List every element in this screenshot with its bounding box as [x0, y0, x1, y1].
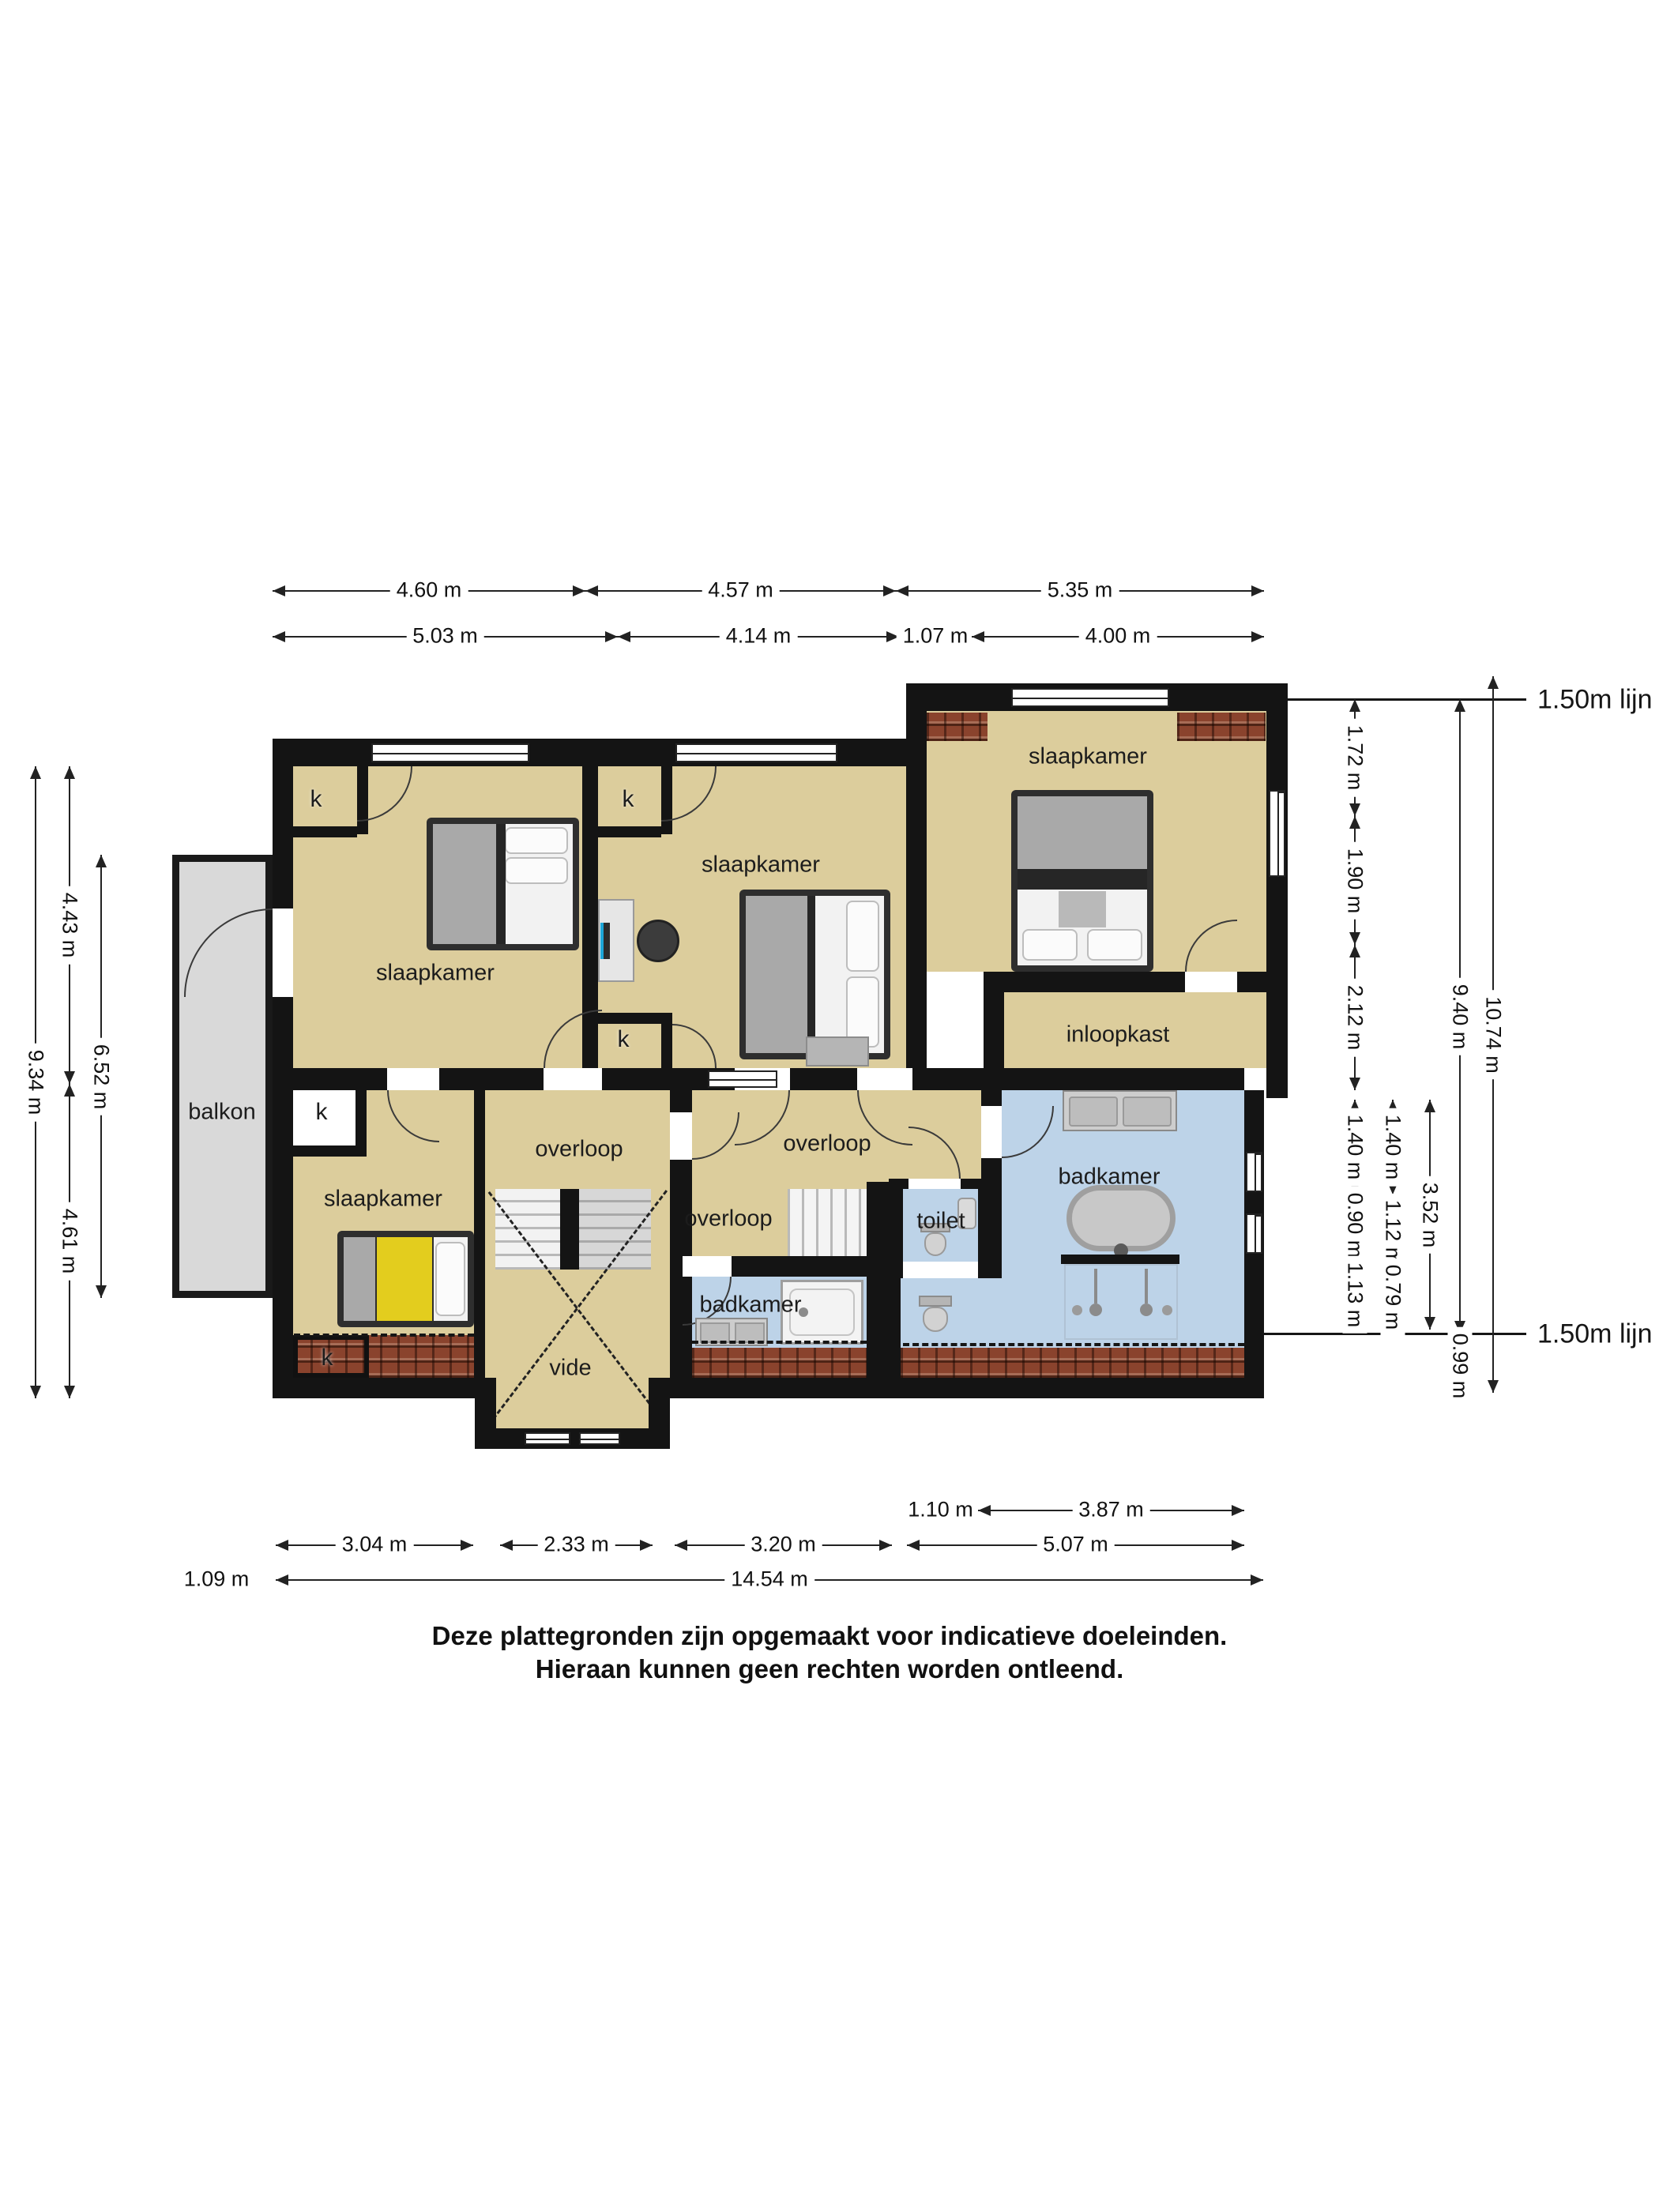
closet-label-k: k [623, 786, 634, 813]
dimension-top-414: 4.14 m [618, 636, 899, 638]
dimension-label: 9.34 m [24, 1044, 48, 1122]
closet-label-k: k [618, 1026, 630, 1053]
dimension-bot-387: 3.87 m [978, 1510, 1244, 1511]
dimension-label: 1.10 m [901, 1498, 980, 1522]
dimension-top-535: 5.35 m [896, 590, 1264, 592]
dimension-top-460: 4.60 m [273, 590, 585, 592]
dimension-label: 10.74 m [1481, 990, 1506, 1080]
dimension-right-190: 1.90 m [1354, 816, 1356, 945]
dimension-right-352: 3.52 m [1429, 1100, 1431, 1330]
closet-label-k: k [322, 1345, 333, 1371]
dimension-label: 6.52 m [89, 1037, 114, 1115]
dimension-label: 2.33 m [537, 1533, 615, 1557]
dimension-label: 3.52 m [1418, 1176, 1443, 1254]
dimension-label: 14.54 m [724, 1567, 814, 1592]
dimension-label: 9.40 m [1448, 977, 1473, 1055]
dimension-label: 0.79 m [1381, 1258, 1405, 1337]
dimension-left-461: 4.61 m [69, 1084, 70, 1398]
dimension-label: 4.60 m [390, 578, 468, 603]
dimension-left-443: 4.43 m [69, 766, 70, 1084]
dimension-top-457: 4.57 m [585, 590, 896, 592]
dimension-label: 1.07 m [897, 624, 975, 649]
dimension-label: 1.72 m [1343, 719, 1367, 797]
dimension-bot-109: 1.09 m [182, 1579, 251, 1581]
dimension-label: 4.00 m [1079, 624, 1157, 649]
floorplan-page: slaapkamer slaapkamer slaapkamer slaapka… [0, 0, 1659, 2212]
dimension-right-113: 1.13 m [1354, 1256, 1356, 1333]
dimension-label: 0.99 m [1448, 1327, 1473, 1405]
dimension-label: 1.40 m [1343, 1108, 1367, 1187]
dimension-label: 5.07 m [1036, 1533, 1115, 1557]
dimension-bot-304: 3.04 m [276, 1544, 473, 1546]
dimension-label: 1.40 m [1381, 1108, 1405, 1187]
dimension-top-400: 4.00 m [972, 636, 1264, 638]
dimension-bot-233: 2.33 m [500, 1544, 653, 1546]
dimension-left-934: 9.34 m [35, 766, 36, 1398]
dimension-label: 4.14 m [720, 624, 798, 649]
dimension-right-140a: 1.40 m [1354, 1100, 1356, 1194]
dimension-label: 3.20 m [744, 1533, 822, 1557]
dimension-label: 1.13 m [1343, 1255, 1367, 1334]
closet-label-k: k [316, 1099, 328, 1126]
dimension-right-099: 0.99 m [1459, 1334, 1461, 1398]
dimension-top-107: 1.07 m [899, 636, 972, 638]
dimension-label: 3.04 m [336, 1533, 414, 1557]
dimension-right-172: 1.72 m [1354, 699, 1356, 816]
dimension-label: 2.12 m [1343, 979, 1367, 1057]
dimension-right-212: 2.12 m [1354, 945, 1356, 1090]
dimension-right-140b: 1.40 m [1392, 1100, 1394, 1194]
dimension-bot-320: 3.20 m [675, 1544, 892, 1546]
dimension-bot-1454: 14.54 m [276, 1579, 1263, 1581]
dimension-label: 5.35 m [1041, 578, 1119, 603]
closet-label-k: k [310, 786, 322, 813]
dimension-label: 4.57 m [702, 578, 780, 603]
dimension-right-090: 0.90 m [1354, 1194, 1356, 1256]
dimension-bot-110: 1.10 m [903, 1510, 978, 1511]
dimension-label: 5.03 m [406, 624, 484, 649]
dimension-right-1074: 10.74 m [1492, 676, 1494, 1393]
dimension-label: 1.09 m [178, 1567, 256, 1592]
dimension-label: 3.87 m [1072, 1498, 1150, 1522]
generated-annotations: kkkkk4.60 m4.57 m5.35 m5.03 m4.14 m1.07 … [0, 0, 1659, 2212]
dimension-right-940: 9.40 m [1459, 699, 1461, 1334]
dimension-label: 0.90 m [1343, 1187, 1367, 1265]
dimension-left-652: 6.52 m [100, 855, 102, 1298]
dimension-bot-507: 5.07 m [907, 1544, 1244, 1546]
dimension-label: 1.90 m [1343, 841, 1367, 920]
dimension-right-079: 0.79 m [1392, 1270, 1394, 1324]
dimension-top-503: 5.03 m [273, 636, 618, 638]
dimension-label: 4.61 m [58, 1202, 82, 1281]
dimension-label: 4.43 m [58, 886, 82, 965]
